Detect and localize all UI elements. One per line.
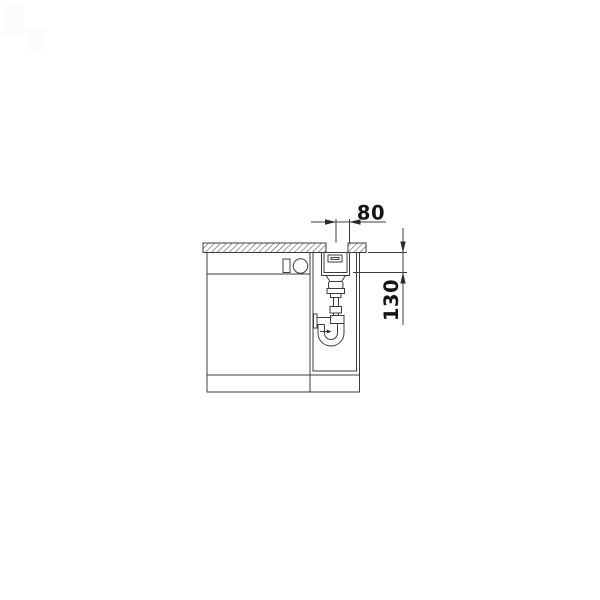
dim130-label: 130 [380, 279, 403, 321]
overflow-slot-inner [331, 258, 339, 260]
trap-inlet-nut [331, 316, 345, 324]
dim80-label: 80 [357, 202, 385, 225]
flow-arrow-icon [327, 330, 332, 334]
dim80-arrow-left-icon [325, 219, 336, 224]
wall-flange [314, 314, 318, 328]
cabinet [207, 253, 360, 393]
sink-bowl [322, 253, 350, 276]
trap-u-bend-outer [318, 324, 344, 347]
cabinet-plinth [207, 375, 360, 392]
strainer-body [329, 282, 344, 289]
strainer-nut [327, 289, 345, 294]
dim130-arrow-top-icon [400, 242, 405, 253]
sink-installation-diagram: 80 130 [0, 0, 600, 600]
countertop-left-segment [203, 243, 326, 253]
drain-assembly [326, 276, 346, 316]
countertop-right-segment [348, 243, 366, 253]
countertop [203, 243, 366, 253]
siphon-trap [314, 314, 345, 346]
dimension-80: 80 [311, 202, 386, 243]
strainer-collar [331, 294, 342, 298]
overflow-slot [328, 255, 342, 262]
switch-symbol-icon [283, 259, 290, 273]
cabinet-front-symbols [283, 259, 308, 273]
knob-symbol-icon [293, 259, 307, 273]
pipe-union-nut [330, 307, 342, 314]
drain-taper [326, 276, 346, 282]
drawing-canvas: 80 130 [0, 0, 600, 600]
